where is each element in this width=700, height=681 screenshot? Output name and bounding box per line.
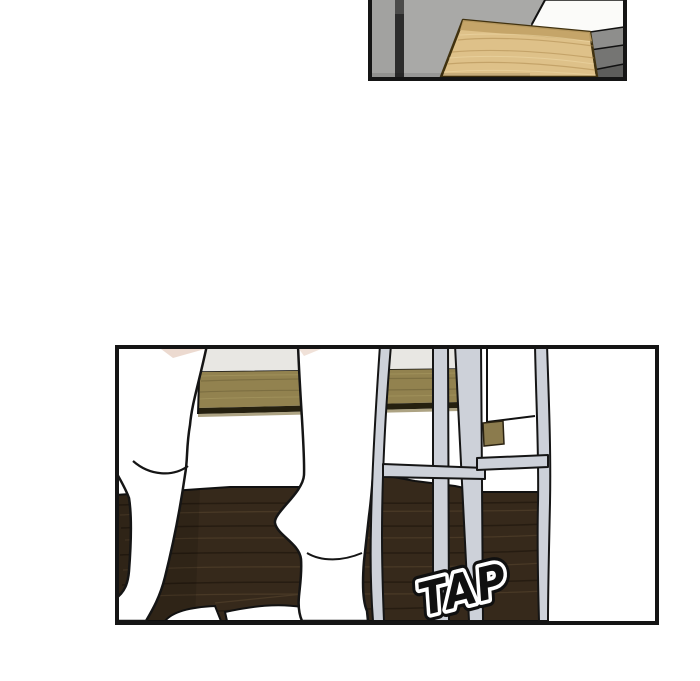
cabinet-floor-shadow bbox=[372, 73, 530, 77]
border-left bbox=[115, 345, 119, 625]
bottom-panel-art: TAP TAP TAP bbox=[115, 345, 659, 625]
border-top bbox=[115, 345, 659, 349]
top-panel bbox=[368, 0, 627, 81]
manga-page: { "page": { "background": "#ffffff", "ki… bbox=[0, 0, 700, 681]
border-right bbox=[655, 345, 659, 625]
stool-leg-right bbox=[535, 345, 550, 621]
border-bottom bbox=[115, 621, 659, 625]
border-left bbox=[368, 0, 372, 81]
border-right bbox=[623, 0, 627, 81]
top-panel-art bbox=[368, 0, 627, 81]
cabinet-left-door bbox=[372, 0, 395, 81]
stool-rung-right bbox=[477, 455, 548, 470]
cabinet-gap-highlight bbox=[395, 0, 404, 14]
far-bench-wood bbox=[483, 421, 504, 446]
bottom-panel: TAP TAP TAP bbox=[115, 345, 659, 625]
border-bottom bbox=[368, 77, 627, 81]
